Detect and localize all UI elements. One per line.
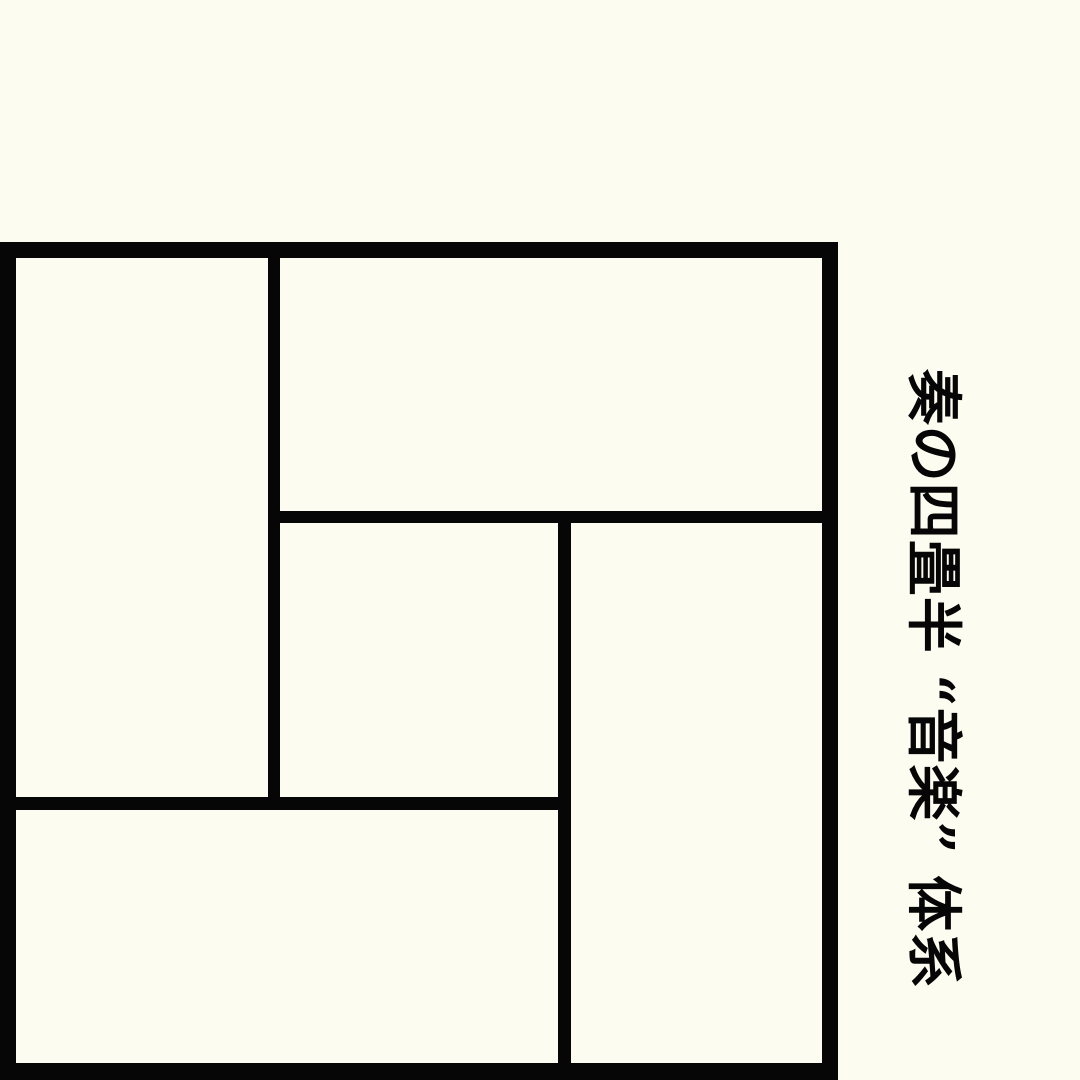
mat-center-half [280,523,558,797]
vertical-title: 奏の四畳半 “音楽” 体系 [905,369,961,989]
mat-left-full [16,258,268,797]
tatami-diagram [0,242,838,1080]
mat-right-full [571,523,822,1063]
mat-bottom-full [16,810,558,1063]
poster: 奏の四畳半 “音楽” 体系 [0,0,1080,1080]
mat-top-full [280,258,822,511]
